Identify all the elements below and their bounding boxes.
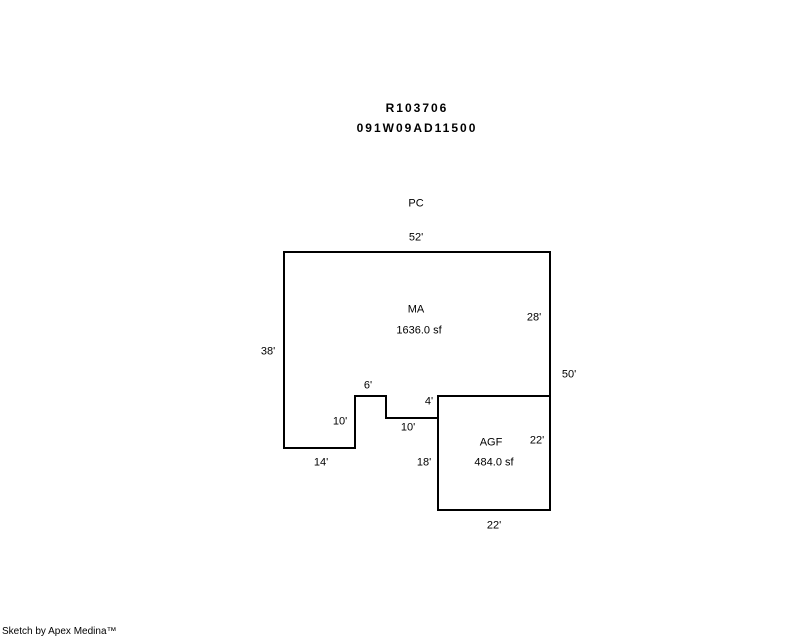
dim-label-left-lobe-side: 10'	[333, 417, 347, 428]
sketch-credit: Sketch by Apex Medina™	[2, 627, 117, 637]
sketch-page: R103706 091W09AD11500 PC 52' 38' 28' 50'…	[0, 0, 800, 640]
agf-area-sqft: 484.0 sf	[474, 458, 513, 469]
dim-label-right-total: 50'	[562, 370, 576, 381]
dim-label-top: 52'	[409, 233, 423, 244]
building-outline	[284, 252, 550, 510]
dim-label-bottom-left: 14'	[314, 458, 328, 469]
dim-label-agf-bottom: 22'	[487, 521, 501, 532]
dim-label-right-upper: 28'	[527, 313, 541, 324]
porch-area-label: PC	[408, 199, 423, 210]
ma-area-sqft: 1636.0 sf	[396, 326, 441, 337]
dim-label-agf-right: 22'	[530, 436, 544, 447]
dim-label-notch-bottom: 10'	[401, 423, 415, 434]
dim-label-notch-top: 6'	[364, 381, 372, 392]
agf-area-code: AGF	[480, 438, 503, 449]
dim-label-agf-left: 18'	[417, 458, 431, 469]
dim-label-step-side: 4'	[425, 397, 433, 408]
area-divider-line	[438, 396, 550, 418]
ma-area-code: MA	[408, 305, 425, 316]
dim-label-left: 38'	[261, 347, 275, 358]
building-sketch-drawing	[0, 0, 800, 640]
